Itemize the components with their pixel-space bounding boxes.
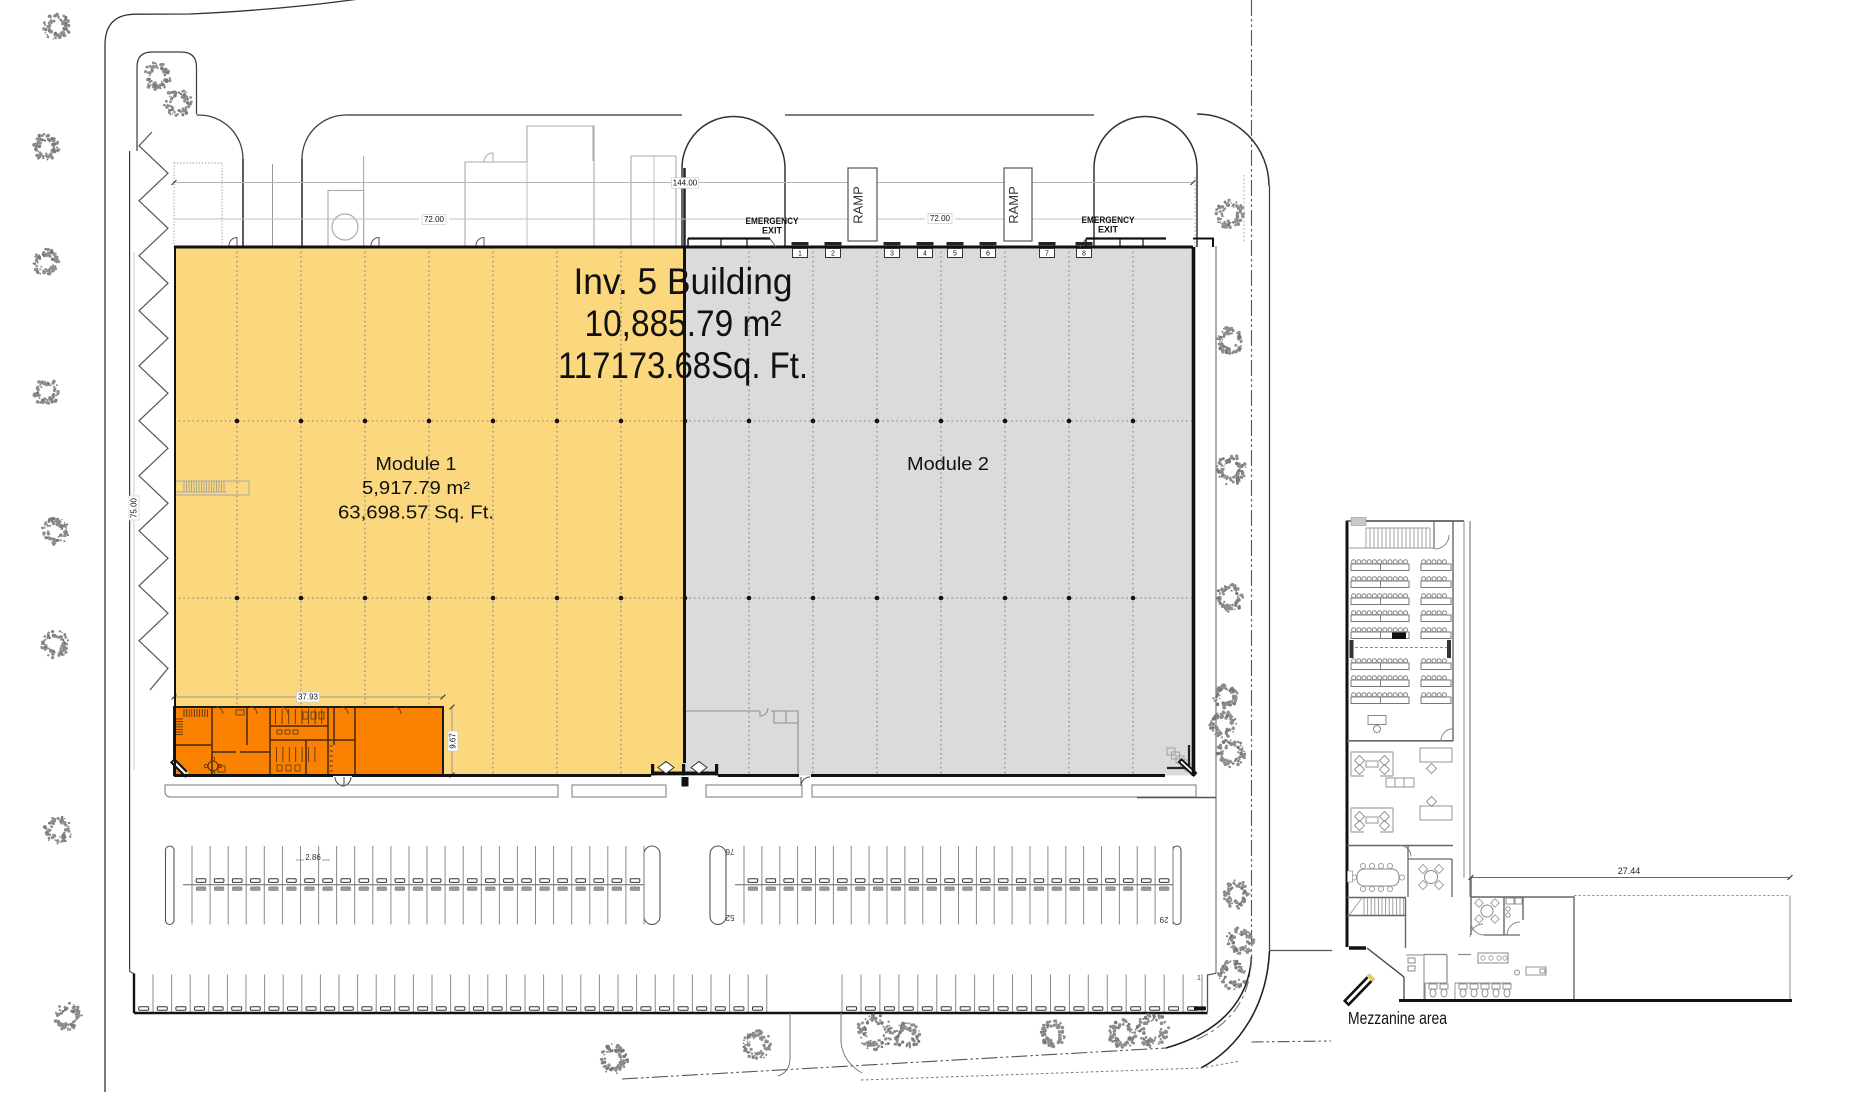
svg-text:EXIT: EXIT	[762, 226, 782, 236]
svg-text:Inv. 5 Building: Inv. 5 Building	[574, 261, 793, 302]
svg-text:Module 2: Module 2	[907, 454, 989, 474]
svg-text:5,917.79 m²: 5,917.79 m²	[362, 478, 470, 498]
svg-text:29: 29	[1159, 915, 1168, 924]
svg-text:72.00: 72.00	[930, 214, 951, 223]
svg-text:EMERGENCY: EMERGENCY	[1082, 215, 1135, 225]
svg-text:37.93: 37.93	[298, 693, 319, 702]
svg-text:EMERGENCY: EMERGENCY	[746, 216, 799, 226]
svg-text:1: 1	[1197, 975, 1201, 982]
svg-text:2.86: 2.86	[305, 853, 321, 862]
svg-text:6: 6	[986, 251, 990, 258]
svg-text:RAMP: RAMP	[1006, 186, 1021, 224]
svg-text:72.00: 72.00	[424, 215, 445, 224]
svg-text:76: 76	[725, 847, 734, 856]
svg-text:Module 1: Module 1	[376, 454, 457, 474]
svg-text:7: 7	[1045, 251, 1049, 258]
svg-text:117173.68Sq. Ft.: 117173.68Sq. Ft.	[558, 345, 808, 386]
svg-text:3: 3	[890, 251, 894, 258]
svg-text:9.67: 9.67	[449, 733, 458, 749]
svg-text:EXIT: EXIT	[1098, 225, 1118, 235]
svg-text:5: 5	[953, 251, 957, 258]
svg-text:Mezzanine area: Mezzanine area	[1348, 1008, 1447, 1028]
svg-text:75.00: 75.00	[130, 497, 139, 518]
svg-text:27.44: 27.44	[1618, 866, 1641, 876]
svg-text:52: 52	[725, 913, 734, 922]
svg-text:63,698.57 Sq. Ft.: 63,698.57 Sq. Ft.	[338, 503, 494, 523]
svg-text:RAMP: RAMP	[851, 186, 866, 224]
svg-text:8: 8	[1082, 251, 1086, 258]
svg-text:1: 1	[798, 251, 802, 258]
svg-text:144.00: 144.00	[673, 179, 698, 188]
svg-text:4: 4	[923, 251, 927, 258]
svg-text:10,885.79 m²: 10,885.79 m²	[585, 303, 782, 344]
svg-text:2: 2	[831, 251, 835, 258]
